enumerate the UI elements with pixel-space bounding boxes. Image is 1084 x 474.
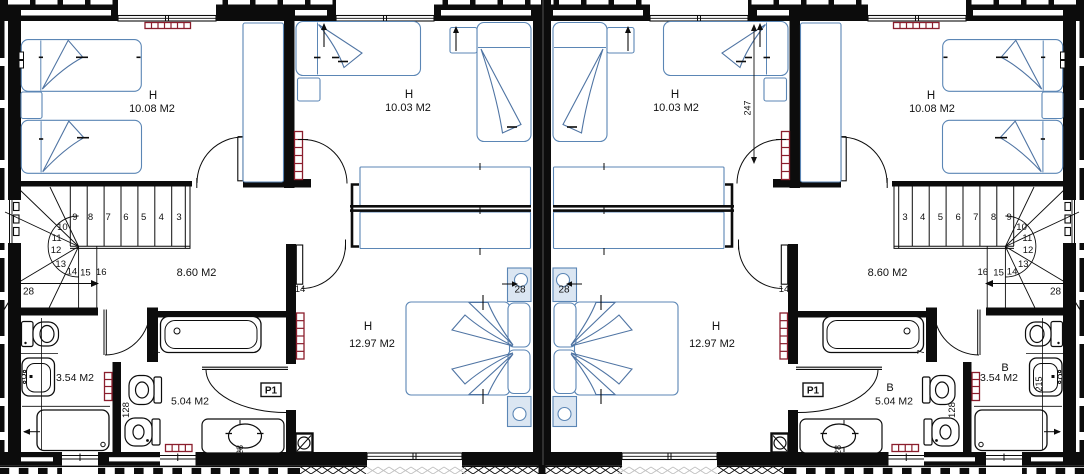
svg-text:7: 7 [106,212,111,223]
svg-text:10.03 M2: 10.03 M2 [653,102,699,114]
svg-text:215: 215 [1034,376,1044,391]
svg-text:10: 10 [1016,222,1027,233]
svg-text:128: 128 [121,402,132,418]
svg-text:3.54 M2: 3.54 M2 [56,372,94,384]
svg-text:28: 28 [235,445,245,455]
svg-text:11: 11 [1022,233,1032,244]
svg-text:11: 11 [52,233,62,244]
svg-text:8: 8 [991,212,996,223]
svg-text:12: 12 [51,245,62,256]
svg-text:8.60 M2: 8.60 M2 [868,267,908,279]
svg-text:5.04 M2: 5.04 M2 [875,396,913,408]
svg-text:H: H [149,90,157,102]
svg-text:5.04 M2: 5.04 M2 [171,396,209,408]
svg-text:16: 16 [978,267,989,278]
svg-text:H: H [712,321,720,333]
svg-text:8: 8 [88,212,93,223]
svg-text:28: 28 [23,287,35,298]
svg-text:8.60 M2: 8.60 M2 [177,267,217,279]
svg-text:3.54 M2: 3.54 M2 [980,372,1018,384]
svg-text:B: B [886,382,893,394]
svg-text:P1: P1 [807,386,820,397]
svg-text:5: 5 [938,212,943,223]
svg-text:7: 7 [152,349,162,354]
svg-text:6: 6 [955,212,960,223]
svg-text:10.08 M2: 10.08 M2 [909,103,955,115]
svg-text:B: B [1001,362,1008,374]
svg-text:12.97 M2: 12.97 M2 [349,338,395,350]
svg-text:H: H [671,89,679,101]
svg-text:12.97 M2: 12.97 M2 [689,338,735,350]
svg-text:28: 28 [514,285,526,296]
svg-text:14: 14 [1007,267,1018,278]
svg-text:H: H [364,321,372,333]
svg-text:6: 6 [123,212,128,223]
svg-text:12: 12 [1023,245,1034,256]
svg-text:9: 9 [1006,212,1011,223]
svg-text:14: 14 [67,267,78,278]
svg-text:15: 15 [993,268,1004,279]
svg-text:3: 3 [176,212,181,223]
svg-text:H: H [405,89,413,101]
svg-text:15: 15 [80,268,91,279]
svg-text:13: 13 [55,259,66,270]
svg-text:P1: P1 [265,386,278,397]
svg-text:16: 16 [96,267,107,278]
svg-text:3: 3 [902,212,907,223]
svg-text:247: 247 [743,100,753,115]
svg-text:9: 9 [72,212,77,223]
svg-text:28: 28 [833,445,843,455]
svg-text:13: 13 [1018,259,1029,270]
svg-text:28: 28 [1050,287,1062,298]
svg-text:28: 28 [558,285,570,296]
svg-text:128: 128 [947,402,958,418]
svg-text:14: 14 [779,284,790,295]
svg-text:7: 7 [973,212,978,223]
svg-text:5: 5 [141,212,146,223]
svg-text:14: 14 [295,284,306,295]
svg-text:10: 10 [57,222,68,233]
svg-text:4: 4 [920,212,925,223]
svg-text:H: H [927,90,935,102]
svg-text:10.03 M2: 10.03 M2 [385,102,431,114]
svg-text:4: 4 [159,212,164,223]
svg-text:7: 7 [916,349,926,354]
svg-text:10.08 M2: 10.08 M2 [129,103,175,115]
